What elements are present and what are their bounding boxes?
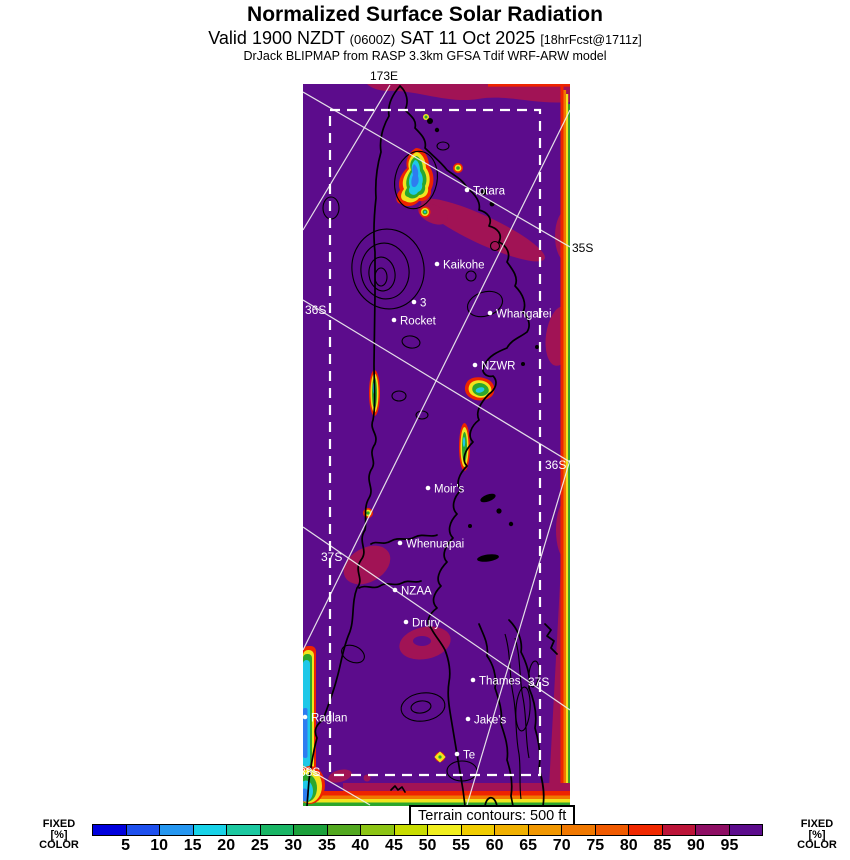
place-dot [392, 318, 397, 323]
colorbar-fixed-label-right: FIXED[%]COLOR [791, 819, 843, 851]
place-dot [426, 486, 431, 491]
colorbar-segment-19 [695, 825, 729, 835]
model-line: DrJack BLIPMAP from RASP 3.3km GFSA Tdif… [0, 49, 850, 63]
valid-date: SAT 11 Oct 2025 [400, 28, 535, 48]
colorbar-tick-45: 45 [385, 837, 403, 855]
colorbar-tick-35: 35 [318, 837, 336, 855]
place-dot [393, 588, 398, 593]
graticule-label-37s: 37S [528, 675, 549, 689]
colorbar-tick-15: 15 [184, 837, 202, 855]
colorbar-segment-14 [528, 825, 562, 835]
colorbar-segment-11 [427, 825, 461, 835]
valid-time-line: Valid 1900 NZDT (0600Z) SAT 11 Oct 2025 … [0, 28, 850, 49]
colorbar-segment-10 [394, 825, 428, 835]
colorbar-segment-15 [561, 825, 595, 835]
place-name: Whangarei [496, 309, 552, 321]
place-dot [465, 188, 470, 193]
place-name: Whenuapai [406, 539, 464, 551]
place-name: Drury [412, 618, 440, 630]
place-name: NZWR [481, 361, 516, 373]
graticule-label-36s: 36S [305, 303, 326, 317]
place-dot [471, 678, 476, 683]
colorbar-segment-17 [628, 825, 662, 835]
solar-radiation-map: 173E35S36S36S37S37S38S TotaraKaikohe3Roc… [283, 64, 595, 826]
colorbar-tick-85: 85 [653, 837, 671, 855]
valid-time: Valid 1900 NZDT [208, 28, 344, 48]
place-dot [488, 311, 493, 316]
colorbar-segment-20 [729, 825, 763, 835]
colorbar-segment-4 [193, 825, 227, 835]
colorbar-tick-55: 55 [452, 837, 470, 855]
colorbar-tick-80: 80 [620, 837, 638, 855]
colorbar [92, 824, 763, 836]
side-label-line: COLOR [33, 840, 85, 851]
blipmap-page: { "header": { "title": "Normalized Surfa… [0, 0, 850, 860]
place-dot [455, 752, 460, 757]
graticule-label-35s: 35S [572, 241, 593, 255]
place-name: Te [463, 750, 475, 762]
graticule-label-173e: 173E [370, 69, 398, 83]
map-field [295, 84, 579, 806]
colorbar-tick-20: 20 [217, 837, 235, 855]
place-dot [435, 262, 440, 267]
colorbar-tick-50: 50 [419, 837, 437, 855]
colorbar-segment-8 [327, 825, 361, 835]
place-name: 3 [420, 298, 426, 310]
place-thames: Thames [471, 676, 521, 688]
colorbar-tick-65: 65 [519, 837, 537, 855]
place-whangarei: Whangarei [488, 309, 552, 321]
colorbar-segment-7 [293, 825, 327, 835]
valid-time-zulu: (0600Z) [350, 32, 396, 47]
place-dot [404, 620, 409, 625]
colorbar-tick-30: 30 [284, 837, 302, 855]
place-name: Moir's [434, 484, 465, 496]
colorbar-segment-18 [662, 825, 696, 835]
place-dot [412, 300, 417, 305]
colorbar-segment-9 [360, 825, 394, 835]
header: Normalized Surface Solar Radiation Valid… [0, 3, 850, 63]
place-name: Jake's [474, 715, 506, 727]
place-name: Raglan [311, 713, 347, 725]
colorbar-tick-10: 10 [150, 837, 168, 855]
bottom-edge-band [303, 783, 570, 806]
colorbar-tick-90: 90 [687, 837, 705, 855]
colorbar-tick-60: 60 [486, 837, 504, 855]
place-dot [473, 363, 478, 368]
colorbar-tick-95: 95 [721, 837, 739, 855]
colorbar-tick-40: 40 [351, 837, 369, 855]
place-name: Thames [479, 676, 521, 688]
place-name: Kaikohe [443, 260, 485, 272]
colorbar-segment-5 [226, 825, 260, 835]
graticule-label-38s: 38S [299, 765, 320, 779]
place-name: Rocket [400, 316, 437, 328]
colorbar-segment-3 [159, 825, 193, 835]
colorbar-tick-25: 25 [251, 837, 269, 855]
page-title: Normalized Surface Solar Radiation [0, 3, 850, 27]
side-label-line: FIXED [791, 819, 843, 830]
graticule-label-36s: 36S [545, 458, 566, 472]
colorbar-segment-12 [461, 825, 495, 835]
place-whenuapai: Whenuapai [398, 539, 464, 551]
colorbar-segment-1 [93, 825, 126, 835]
colorbar-segment-13 [494, 825, 528, 835]
place-dot [466, 717, 471, 722]
colorbar-tick-70: 70 [553, 837, 571, 855]
place-name: Totara [473, 186, 506, 198]
side-label-line: COLOR [791, 840, 843, 851]
colorbar-tick-labels: 5101520253035404550556065707580859095 [92, 837, 763, 855]
forecast-tag: [18hrFcst@1711z] [540, 33, 641, 47]
colorbar-fixed-label-left: FIXED[%]COLOR [33, 819, 85, 851]
graticule-label-37s: 37S [321, 550, 342, 564]
place-name: NZAA [401, 586, 432, 598]
side-label-line: FIXED [33, 819, 85, 830]
colorbar-tick-75: 75 [586, 837, 604, 855]
colorbar-segment-6 [260, 825, 294, 835]
colorbar-segment-16 [595, 825, 629, 835]
place-kaikohe: Kaikohe [435, 260, 485, 272]
place-dot [398, 541, 403, 546]
colorbar-tick-5: 5 [121, 837, 130, 855]
colorbar-segment-2 [126, 825, 160, 835]
place-dot [303, 715, 308, 720]
